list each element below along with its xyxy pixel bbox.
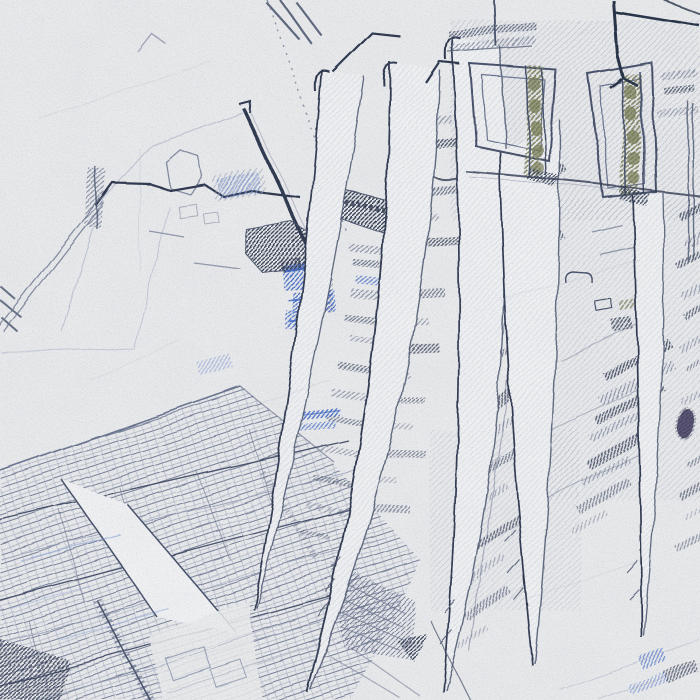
sketch-canvas xyxy=(0,0,700,700)
paper-grain-light xyxy=(0,0,700,700)
sketch-artwork xyxy=(0,0,700,700)
